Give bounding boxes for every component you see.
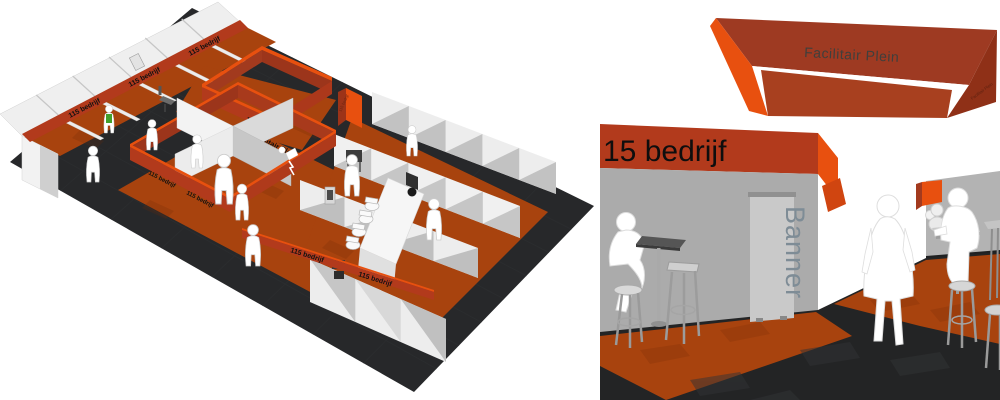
visitor-green-shirt <box>106 114 112 123</box>
poster-stand <box>325 187 335 204</box>
corner-accent-dark <box>916 182 922 210</box>
banner-top-bar <box>748 192 796 197</box>
booth-fascia-label: 15 bedrijf <box>603 135 727 168</box>
row-end-wall-shade <box>40 145 58 198</box>
stool <box>159 86 162 95</box>
overview-render: 115 bedrijf 115 bedrijf 115 bedrijf 115 … <box>0 0 600 400</box>
corner-accent-bright <box>922 180 942 206</box>
banner-foot <box>756 318 763 322</box>
banner-label: Banner <box>780 206 810 299</box>
exhibition-render-canvas: 115 bedrijf 115 bedrijf 115 bedrijf 115 … <box>0 0 1000 400</box>
closeup-render: Facilitair Plein Facilitair Plein 15 bed… <box>600 0 1000 400</box>
banner-foot <box>780 316 787 320</box>
